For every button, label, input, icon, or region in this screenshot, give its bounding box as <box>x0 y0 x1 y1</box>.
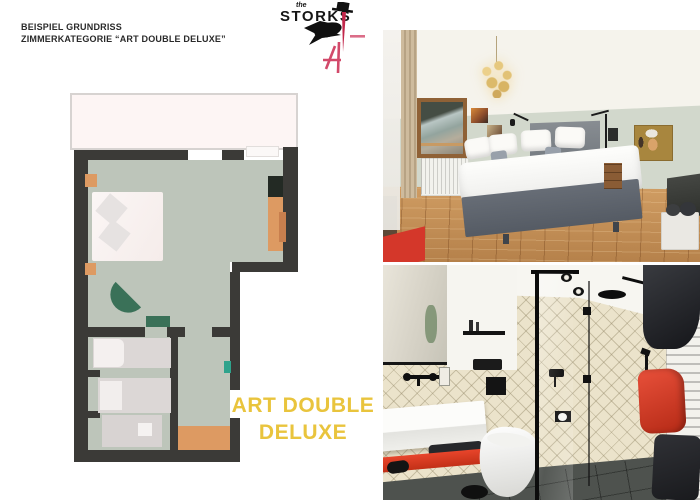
plan-wall-bottom <box>74 450 240 462</box>
plan-closet <box>268 176 283 197</box>
plan-wall-right-mid <box>230 272 240 390</box>
plan-wall-fixture-stub1 <box>88 370 100 377</box>
bedroom-pillow-4 <box>555 126 586 148</box>
bedroom-nightstand <box>604 163 622 189</box>
bedroom-speaker <box>608 128 618 141</box>
room-caption: ART DOUBLE DELUXE <box>225 392 381 446</box>
bathroom-photo <box>383 265 700 500</box>
bathroom-faucet <box>405 375 439 379</box>
bedroom-slipper-1 <box>666 204 680 216</box>
plan-wall-left <box>74 150 88 462</box>
plan-desk-chair <box>279 212 286 242</box>
plan-wall-top-stub <box>222 150 244 160</box>
plan-teal-accent <box>224 361 231 373</box>
bathroom-black-towel-top <box>643 265 700 349</box>
bathroom-shelf <box>463 331 505 335</box>
plan-wall-right-upper <box>283 147 298 272</box>
bedroom-popart-painting <box>634 125 673 161</box>
bedroom-window-sill <box>421 143 463 146</box>
bathroom-faucet-spout <box>417 379 420 386</box>
plan-wall-jut <box>232 262 298 272</box>
plan-bench <box>146 316 170 327</box>
bathroom-red-towel <box>637 368 686 434</box>
bedroom-window <box>417 98 467 158</box>
bathroom-bin <box>461 485 488 499</box>
bedroom-chandelier <box>480 60 514 98</box>
bathroom-rain-showerhead <box>598 290 626 299</box>
bedroom-bed-leg-1 <box>503 234 509 244</box>
caption-line1: ART DOUBLE <box>225 392 381 419</box>
plan-wall-corridor-stub <box>212 327 230 337</box>
bedroom-sheer-curtain <box>383 30 400 230</box>
bathroom-bottle-1 <box>469 320 473 331</box>
bathroom-mirror <box>383 265 449 365</box>
bathroom-white-wall <box>447 265 517 370</box>
bathroom-bottle-2 <box>476 322 479 331</box>
plan-wall-bath-vertical <box>170 337 178 450</box>
plan-wall-bath-stub <box>167 327 185 337</box>
bathroom-black-towel-bottom <box>651 434 700 500</box>
plan-wall-bath-divider <box>88 327 145 337</box>
bathroom-glass-hinge-2 <box>583 375 591 383</box>
bedroom-lamp-left-shade <box>510 119 515 126</box>
plan-nightstand-top <box>85 174 97 187</box>
plan-sink <box>138 423 152 436</box>
bedroom-wall-lamp-left <box>513 113 528 122</box>
plan-nightstand-bottom <box>85 263 96 275</box>
plan-wall-top-left <box>74 150 188 160</box>
caption-line2: DELUXE <box>225 419 381 446</box>
bedroom-photo <box>383 30 700 262</box>
plan-entry-mat <box>178 426 230 450</box>
bathroom-mirror-plant-reflection <box>425 305 437 343</box>
flyer-page: { "header": { "line1": "BEISPIEL GRUNDRI… <box>0 0 700 500</box>
bedroom-bag <box>661 212 699 250</box>
bathroom-black-box <box>473 359 502 370</box>
bedroom-bed-leg-2 <box>613 222 619 232</box>
bathroom-spotlight-1 <box>561 273 572 282</box>
bathroom-dispenser <box>439 367 450 386</box>
bedroom-chandelier-stem <box>496 36 497 62</box>
bedroom-curtain <box>401 30 417 198</box>
plan-vanity <box>102 415 162 447</box>
bedroom-slipper-2 <box>680 202 696 216</box>
bathroom-glass-hinge-1 <box>583 307 591 315</box>
plan-bathtub-headrest <box>100 381 122 410</box>
bathroom-flush-panel <box>486 377 506 395</box>
bathroom-spotlight-2 <box>573 287 584 296</box>
plan-balcony-door <box>246 146 279 157</box>
bathroom-glass-sheen <box>539 273 573 500</box>
plan-shower-tray <box>94 339 124 367</box>
plan-balcony <box>70 93 298 150</box>
bedroom-art-small-1 <box>471 108 488 123</box>
